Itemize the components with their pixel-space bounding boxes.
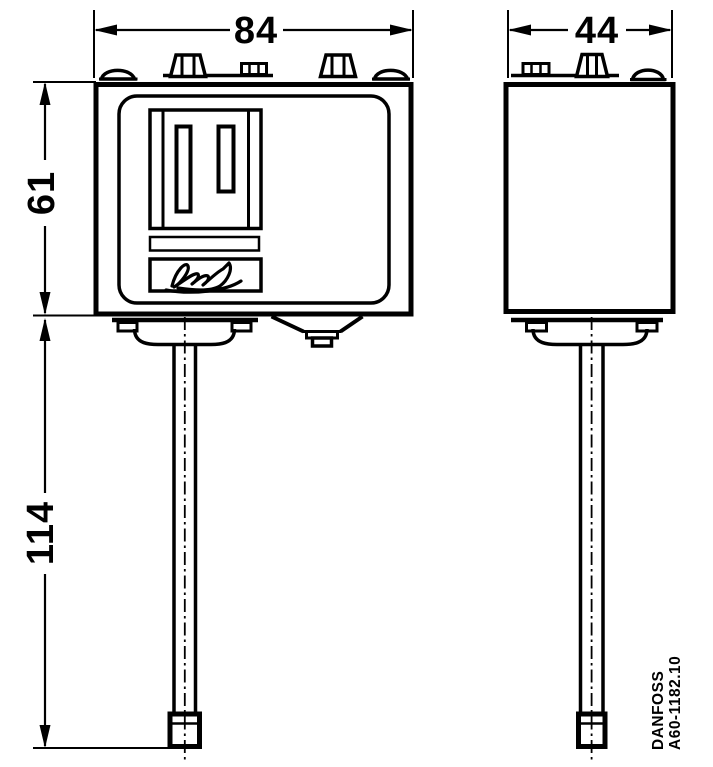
drawing-canvas: 84 44 61 114 DANFOSS A60-1182.1 — [0, 0, 713, 767]
gland-slant-right — [341, 317, 363, 332]
label-brand: DANFOSS — [650, 671, 667, 750]
front-view — [96, 55, 411, 747]
dim-value-61: 61 — [21, 171, 63, 215]
side-flange-bowl — [533, 329, 647, 345]
arrowhead-right-icon — [649, 25, 672, 36]
danfoss-signature — [166, 263, 241, 292]
front-dome-right-icon — [375, 70, 408, 79]
arrowhead-right-icon — [390, 25, 413, 36]
arrowhead-left-icon — [94, 25, 117, 36]
arrowhead-down-icon — [40, 725, 51, 748]
arrowhead-left-icon — [508, 25, 531, 36]
front-small-screw-icon — [242, 64, 267, 75]
dim-value-44: 44 — [575, 10, 619, 52]
side-view — [506, 55, 673, 747]
gland-slant-left — [272, 317, 304, 332]
setting-window-frame — [150, 110, 261, 229]
front-terminal-screw-left-icon — [171, 55, 206, 77]
front-cover-outline — [119, 96, 389, 303]
side-small-screw-icon — [523, 64, 549, 75]
dimension-stem-length: 114 — [20, 318, 170, 748]
side-terminal-screw-icon — [577, 55, 608, 77]
label-code: A60-1182.10 — [667, 656, 684, 750]
front-body-outline — [96, 85, 411, 315]
dim-value-84: 84 — [234, 10, 278, 52]
scale-slot-left — [177, 127, 191, 212]
drawing-label: DANFOSS A60-1182.10 — [650, 656, 684, 750]
dim-value-114: 114 — [20, 501, 62, 565]
side-dome-icon — [633, 70, 664, 79]
arrowhead-down-icon — [40, 292, 51, 315]
name-plate — [150, 237, 259, 251]
dimension-body-height: 61 — [21, 82, 116, 316]
dimension-drawing: 84 44 61 114 DANFOSS A60-1182.1 — [0, 0, 713, 767]
front-dome-left-icon — [102, 70, 135, 79]
scale-slot-right — [219, 127, 234, 192]
side-flange-step-left — [527, 323, 547, 332]
front-terminal-screw-right-icon — [321, 55, 356, 77]
side-body-outline — [506, 85, 673, 312]
gland-step-lower — [313, 338, 332, 346]
arrowhead-up-icon — [40, 82, 51, 105]
arrowhead-up-icon — [40, 318, 51, 341]
